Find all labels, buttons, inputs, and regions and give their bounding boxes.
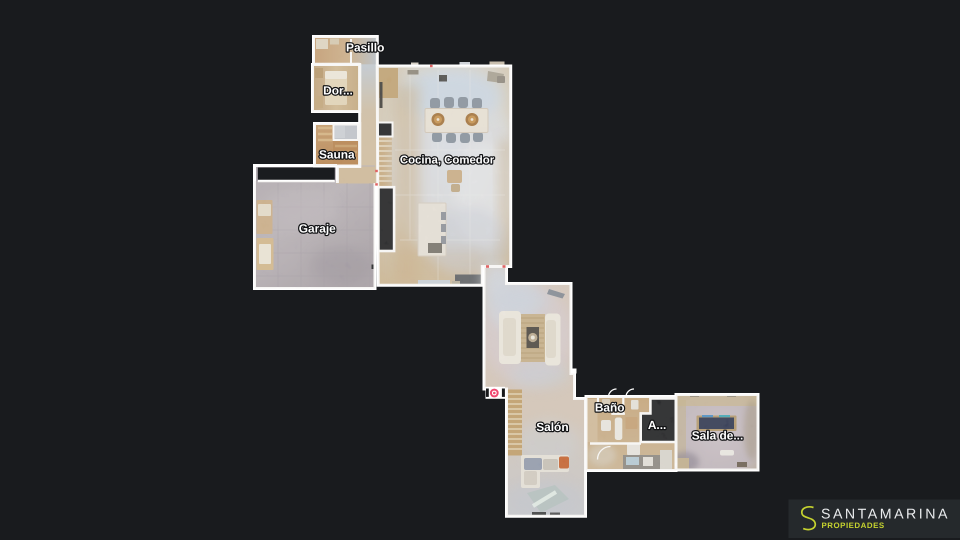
svg-text:Sala de...: Sala de...: [692, 428, 744, 442]
svg-text:Sauna: Sauna: [319, 148, 355, 162]
svg-text:Pasillo: Pasillo: [346, 40, 384, 54]
svg-text:PROPIEDADES: PROPIEDADES: [822, 521, 885, 530]
svg-text:Baño: Baño: [595, 401, 625, 415]
svg-text:Dor...: Dor...: [323, 84, 353, 98]
svg-text:SANTAMARINA: SANTAMARINA: [821, 507, 950, 523]
svg-text:Salón: Salón: [536, 420, 568, 434]
svg-text:Garaje: Garaje: [299, 222, 336, 236]
svg-text:A...: A...: [648, 418, 667, 432]
svg-text:Cocina, Comedor: Cocina, Comedor: [400, 154, 495, 166]
